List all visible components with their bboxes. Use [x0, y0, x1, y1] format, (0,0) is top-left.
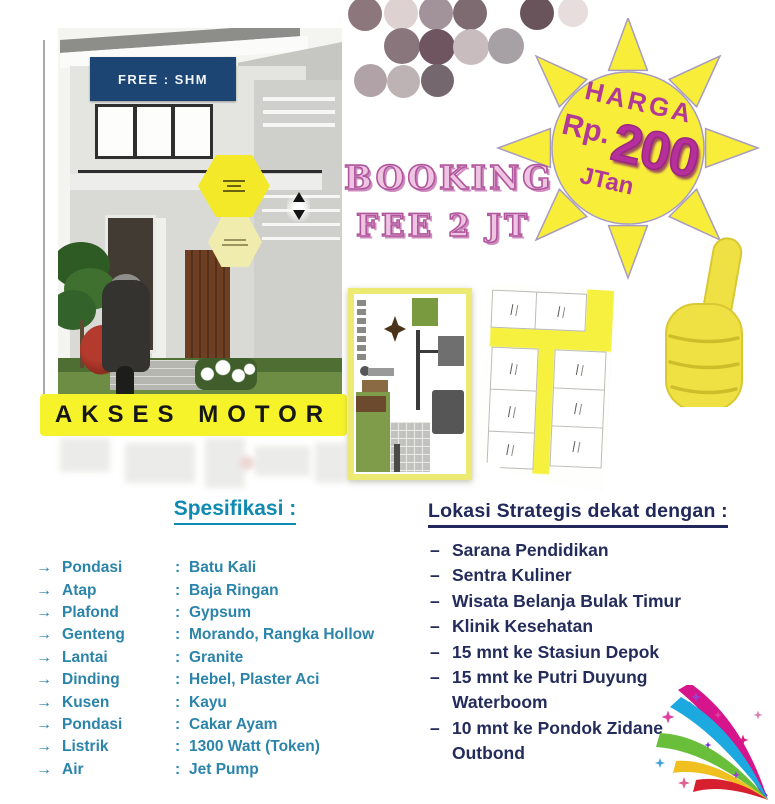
reflection-blob — [240, 456, 254, 470]
decorative-dot — [384, 0, 418, 30]
price-currency: Rp. — [559, 108, 614, 151]
arrow-icon: → — [36, 559, 62, 577]
decorative-dot — [453, 29, 489, 65]
dash-bullet: – — [430, 716, 452, 767]
site-road — [585, 288, 614, 334]
arrow-icon: → — [36, 604, 62, 622]
arrow-icon: → — [36, 649, 62, 667]
location-item: –Sentra Kuliner — [430, 563, 722, 588]
lot-label-mark — [557, 306, 565, 318]
white-flowers — [195, 358, 257, 390]
floor-plan-image — [348, 288, 472, 480]
dash-bullet: – — [430, 665, 452, 716]
wall-stripe — [262, 237, 340, 240]
sign-text-mark — [223, 180, 245, 182]
location-item: –Klinik Kesehatan — [430, 614, 722, 639]
sign-text-mark — [223, 190, 245, 192]
site-lot — [488, 389, 536, 435]
wall-stripe — [263, 123, 335, 127]
akses-motor-banner: AKSES MOTOR — [40, 394, 347, 436]
reflection-blob — [205, 438, 245, 488]
decorative-dot — [453, 0, 487, 30]
decorative-dot — [419, 29, 455, 65]
plan-furniture — [362, 380, 388, 392]
booking-line2: FEE 2 JT — [356, 208, 530, 244]
motorcycle — [102, 280, 150, 372]
decorative-dot — [384, 28, 420, 64]
decorative-dot — [348, 0, 382, 31]
akses-motor-label: AKSES MOTOR — [55, 401, 332, 429]
spec-row: →Plafond:Gypsum — [36, 602, 406, 624]
sign-text-mark — [222, 244, 248, 246]
location-item: –15 mnt ke Stasiun Depok — [430, 640, 722, 665]
spec-row: →Pondasi:Batu Kali — [36, 557, 406, 579]
lot-label-mark — [510, 363, 518, 375]
site-lot — [534, 292, 587, 333]
spec-row: →Dinding:Hebel, Plaster Aci — [36, 669, 406, 691]
spec-row: →Lantai:Granite — [36, 647, 406, 669]
decorative-dot — [421, 64, 454, 97]
dash-bullet: – — [430, 538, 452, 563]
window-pane — [98, 107, 133, 156]
reflection-blob — [125, 443, 195, 483]
lot-label-mark — [507, 444, 515, 456]
plan-wall — [416, 330, 420, 410]
site-lot — [551, 387, 605, 430]
lot-label-mark — [574, 403, 582, 415]
sign-text-mark — [227, 185, 241, 187]
spec-heading: Spesifikasi : — [135, 497, 335, 521]
wall-lamp-icon — [287, 190, 310, 226]
upper-windows — [95, 104, 213, 159]
location-heading-label: Lokasi Strategis dekat dengan : — [428, 500, 728, 528]
arrow-icon: → — [36, 738, 62, 756]
wall-stripe — [263, 110, 335, 114]
decorative-dot — [387, 65, 420, 98]
reflection-blob — [60, 438, 110, 472]
photo-reflection — [40, 438, 350, 500]
arrow-icon: → — [36, 761, 62, 779]
site-plan-image — [476, 283, 615, 490]
site-lot — [490, 346, 538, 392]
plan-fixture — [394, 444, 400, 472]
window-pane — [175, 107, 210, 156]
spec-list: →Pondasi:Batu Kali →Atap:Baja Ringan →Pl… — [36, 557, 406, 781]
reflection-blob — [255, 446, 310, 476]
arrow-icon: → — [36, 626, 62, 644]
plan-counter — [368, 368, 394, 376]
spec-row: →Pondasi:Cakar Ayam — [36, 714, 406, 736]
arrow-icon: → — [36, 694, 62, 712]
dash-bullet: – — [430, 614, 452, 639]
arrow-icon: → — [36, 582, 62, 600]
color-splash-graphic — [648, 685, 775, 804]
dash-bullet: – — [430, 589, 452, 614]
site-lot — [549, 426, 603, 469]
window-pane — [137, 107, 172, 156]
dash-bullet: – — [430, 640, 452, 665]
poster-canvas: FREE : SHM — [0, 0, 775, 804]
plan-stairs — [357, 300, 366, 362]
lot-label-mark — [573, 441, 581, 453]
plan-table — [384, 316, 406, 342]
lot-label-mark — [510, 304, 518, 316]
spec-row: →Listrik:1300 Watt (Token) — [36, 736, 406, 758]
decorative-dot — [419, 0, 453, 30]
arrow-icon: → — [36, 671, 62, 689]
decorative-dot — [354, 64, 387, 97]
location-item: –Sarana Pendidikan — [430, 538, 722, 563]
location-heading: Lokasi Strategis dekat dengan : — [428, 500, 728, 523]
site-lot — [487, 431, 535, 469]
plan-furniture — [356, 396, 386, 412]
location-item: –Wisata Belanja Bulak Timur — [430, 589, 722, 614]
site-lot — [490, 290, 538, 330]
floor-divider — [78, 170, 322, 173]
booking-line1: BOOKING — [344, 158, 553, 197]
lot-label-mark — [576, 364, 584, 376]
reflection-blob — [315, 443, 345, 483]
sign-text-mark — [224, 239, 246, 241]
spec-row: →Genteng:Morando, Rangka Hollow — [36, 624, 406, 646]
spec-row: →Atap:Baja Ringan — [36, 579, 406, 601]
spec-row: →Air:Jet Pump — [36, 759, 406, 781]
lamp-shade-up — [293, 192, 305, 202]
site-lot — [553, 349, 607, 392]
plan-bed — [438, 336, 464, 366]
spec-heading-label: Spesifikasi : — [174, 497, 297, 525]
lamp-shade-down — [293, 210, 305, 220]
spec-row: →Kusen:Kayu — [36, 691, 406, 713]
plan-bed — [432, 390, 464, 434]
plan-garden — [412, 298, 438, 326]
floor-band — [70, 174, 322, 190]
arrow-icon: → — [36, 716, 62, 734]
lot-label-mark — [508, 406, 516, 418]
dash-bullet: – — [430, 563, 452, 588]
thumbs-up-icon — [638, 232, 763, 407]
